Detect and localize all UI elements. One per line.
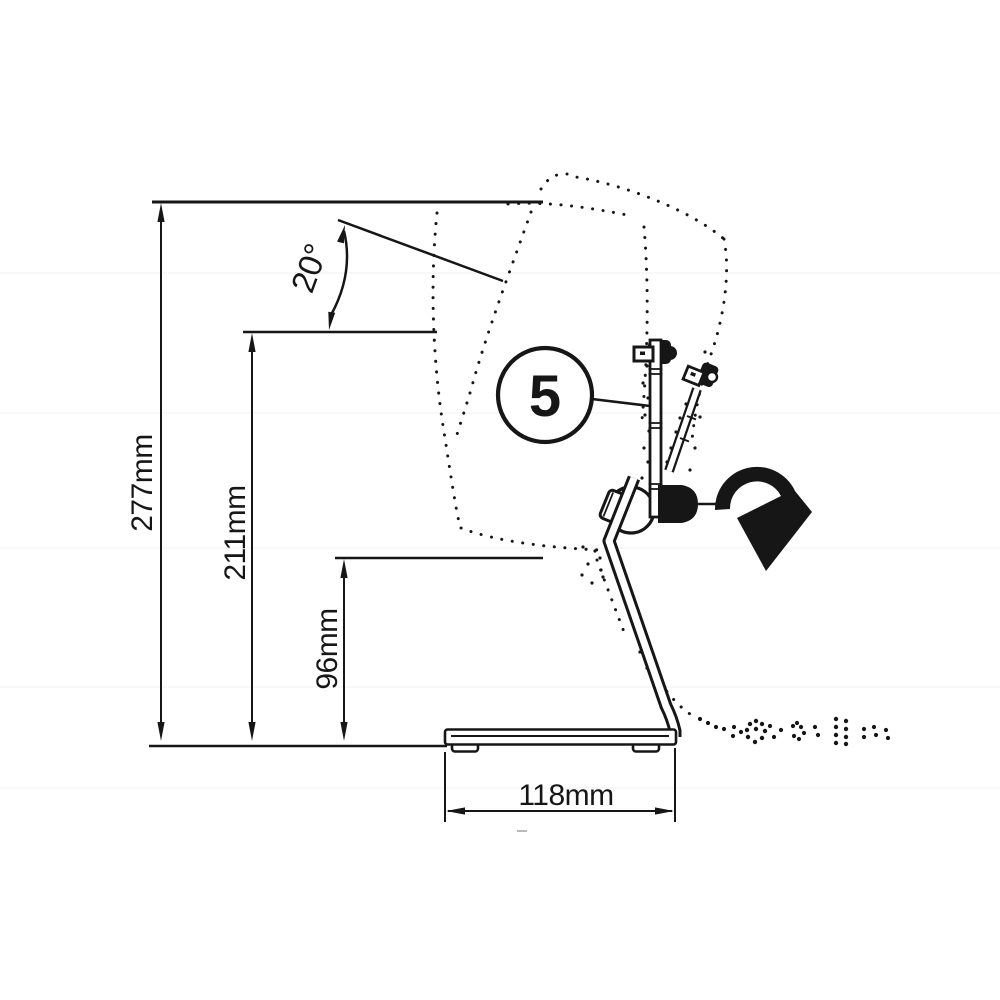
arrow-arc-top bbox=[337, 225, 345, 243]
tension-knob bbox=[658, 485, 698, 523]
ghost-top-arc bbox=[541, 174, 724, 239]
drawing-canvas: 5 277mm 211mm 96mm 118mm 20° bbox=[0, 0, 1000, 1000]
arrow-211-down bbox=[248, 722, 255, 741]
ghost-top-edge bbox=[508, 203, 627, 215]
drawing-page: 5 277mm 211mm 96mm 118mm 20° bbox=[0, 0, 1000, 1000]
tilt-angle-label: 20° bbox=[284, 239, 335, 297]
stand-base bbox=[445, 730, 676, 752]
ghost-right-inner-edge bbox=[642, 227, 647, 420]
dim-label-277: 277mm bbox=[126, 434, 159, 532]
arrow-96-down bbox=[340, 722, 347, 741]
dim-label-96: 96mm bbox=[311, 608, 344, 689]
ghost-right-outer-edge bbox=[692, 239, 727, 440]
arrow-277-down bbox=[157, 722, 164, 741]
ghost-base-dots bbox=[698, 717, 890, 746]
arm-clamp-notch-pin bbox=[640, 352, 645, 356]
callout-5: 5 bbox=[498, 348, 592, 442]
arrow-118-right bbox=[655, 807, 674, 814]
arm-clamp-bump bbox=[663, 346, 677, 360]
ghost-bottom-edge bbox=[461, 528, 601, 550]
arrow-arc-bottom bbox=[328, 312, 335, 330]
rotate-arrow-icon bbox=[715, 467, 812, 571]
tilt-slant-line bbox=[338, 220, 503, 281]
dim-label-211: 211mm bbox=[219, 485, 252, 580]
callout-leader-line bbox=[592, 399, 650, 406]
dim-label-118: 118mm bbox=[518, 779, 613, 812]
arrow-118-left bbox=[446, 807, 465, 814]
arrow-277-up bbox=[157, 203, 164, 222]
arrow-211-up bbox=[248, 333, 255, 352]
callout-number: 5 bbox=[529, 364, 561, 429]
arrow-96-up bbox=[340, 559, 347, 578]
